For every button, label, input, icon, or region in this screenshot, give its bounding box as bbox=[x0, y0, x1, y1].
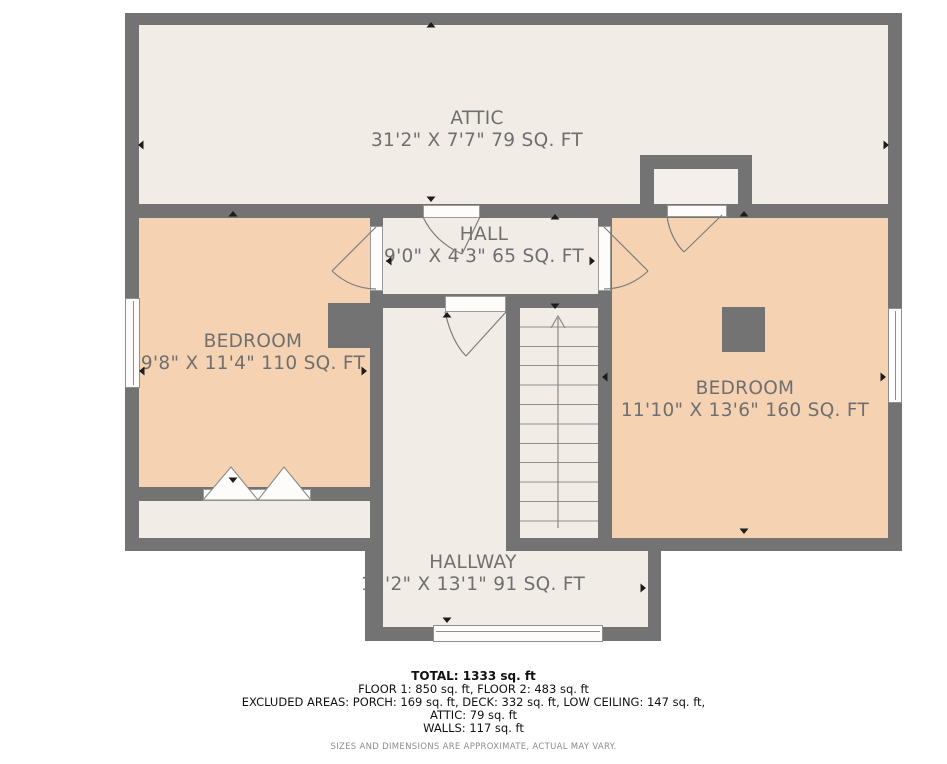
dormer-door-opening bbox=[667, 205, 727, 217]
bedroom-right-label: BEDROOM 11'10" X 13'6" 160 SQ. FT bbox=[595, 378, 895, 422]
wall-outer-right bbox=[888, 13, 902, 551]
wall-outer-left bbox=[125, 13, 139, 551]
chimney-left bbox=[328, 303, 380, 348]
wall-outer-bottom-right bbox=[506, 538, 902, 551]
attic-door-opening bbox=[423, 205, 480, 218]
room-dims: 31'2" X 7'7" 79 SQ. FT bbox=[277, 130, 677, 152]
wall-outer-top bbox=[125, 13, 902, 25]
attic-label: ATTIC 31'2" X 7'7" 79 SQ. FT bbox=[277, 108, 677, 152]
window-left bbox=[125, 298, 140, 388]
floor-plan: ATTIC 31'2" X 7'7" 79 SQ. FT HALL 9'0" X… bbox=[0, 0, 947, 764]
dormer-interior bbox=[654, 169, 738, 204]
room-name: BEDROOM bbox=[595, 378, 895, 400]
area-summary: TOTAL: 1333 sq. ft FLOOR 1: 850 sq. ft, … bbox=[0, 670, 947, 735]
window-right bbox=[888, 308, 902, 403]
wall-attic-bottom bbox=[139, 204, 888, 218]
closet-floor bbox=[139, 501, 370, 538]
chimney-right bbox=[722, 307, 765, 352]
room-dims: 9'8" X 11'4" 110 SQ. FT bbox=[103, 353, 403, 375]
bedroom-right-door-opening bbox=[598, 226, 611, 291]
hallway-door-opening bbox=[445, 296, 506, 312]
staircase bbox=[520, 308, 598, 540]
disclaimer-text: SIZES AND DIMENSIONS ARE APPROXIMATE, AC… bbox=[0, 742, 947, 752]
wall-outer-bottom-left bbox=[125, 538, 383, 551]
room-name: ATTIC bbox=[277, 108, 677, 130]
room-dims: 11'10" X 13'6" 160 SQ. FT bbox=[595, 400, 895, 422]
summary-walls: WALLS: 117 sq. ft bbox=[0, 722, 947, 735]
window-bottom bbox=[433, 625, 603, 642]
bedroom-left-door-opening bbox=[370, 226, 383, 291]
wall-stairwell-left bbox=[506, 306, 520, 540]
closet-bifold-opening bbox=[203, 489, 311, 501]
